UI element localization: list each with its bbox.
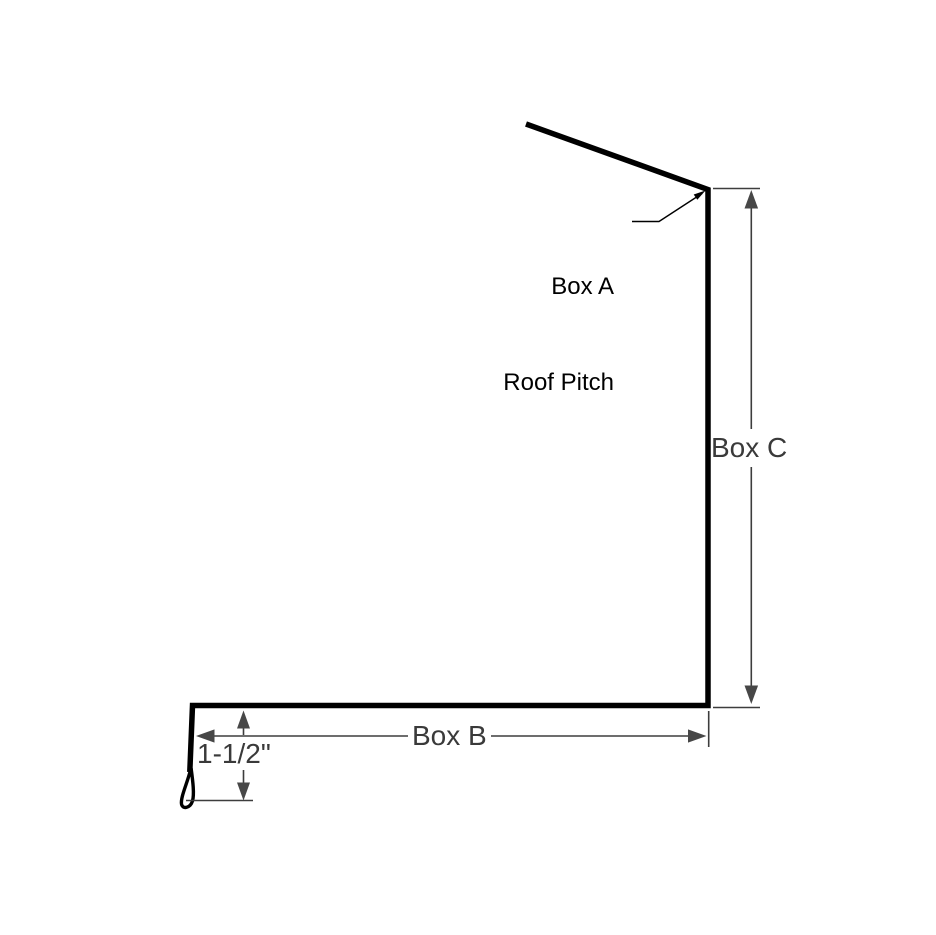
diagram-canvas: Box A Roof Pitch Box C Box B 1-1/2"	[0, 0, 936, 935]
leader-line	[632, 194, 702, 222]
box-a-leader	[632, 191, 706, 222]
roof-pitch-label: Roof Pitch	[503, 367, 614, 399]
hem-loop-path	[181, 769, 193, 807]
profile-outline	[181, 124, 708, 807]
profile-path	[190, 124, 708, 772]
arrow-down-icon	[237, 783, 250, 801]
arrow-down-icon	[745, 686, 759, 705]
box-b-label: Box B	[412, 721, 487, 751]
box-a-label: Box A	[503, 271, 614, 303]
box-a-callout: Box A Roof Pitch	[503, 207, 614, 463]
profile-diagram-svg	[0, 0, 936, 935]
arrow-right-icon	[688, 729, 707, 742]
box-c-label: Box C	[711, 433, 787, 463]
arrow-up-icon	[745, 190, 759, 209]
hem-size-label: 1-1/2"	[197, 739, 271, 769]
arrow-up-icon	[237, 711, 250, 729]
